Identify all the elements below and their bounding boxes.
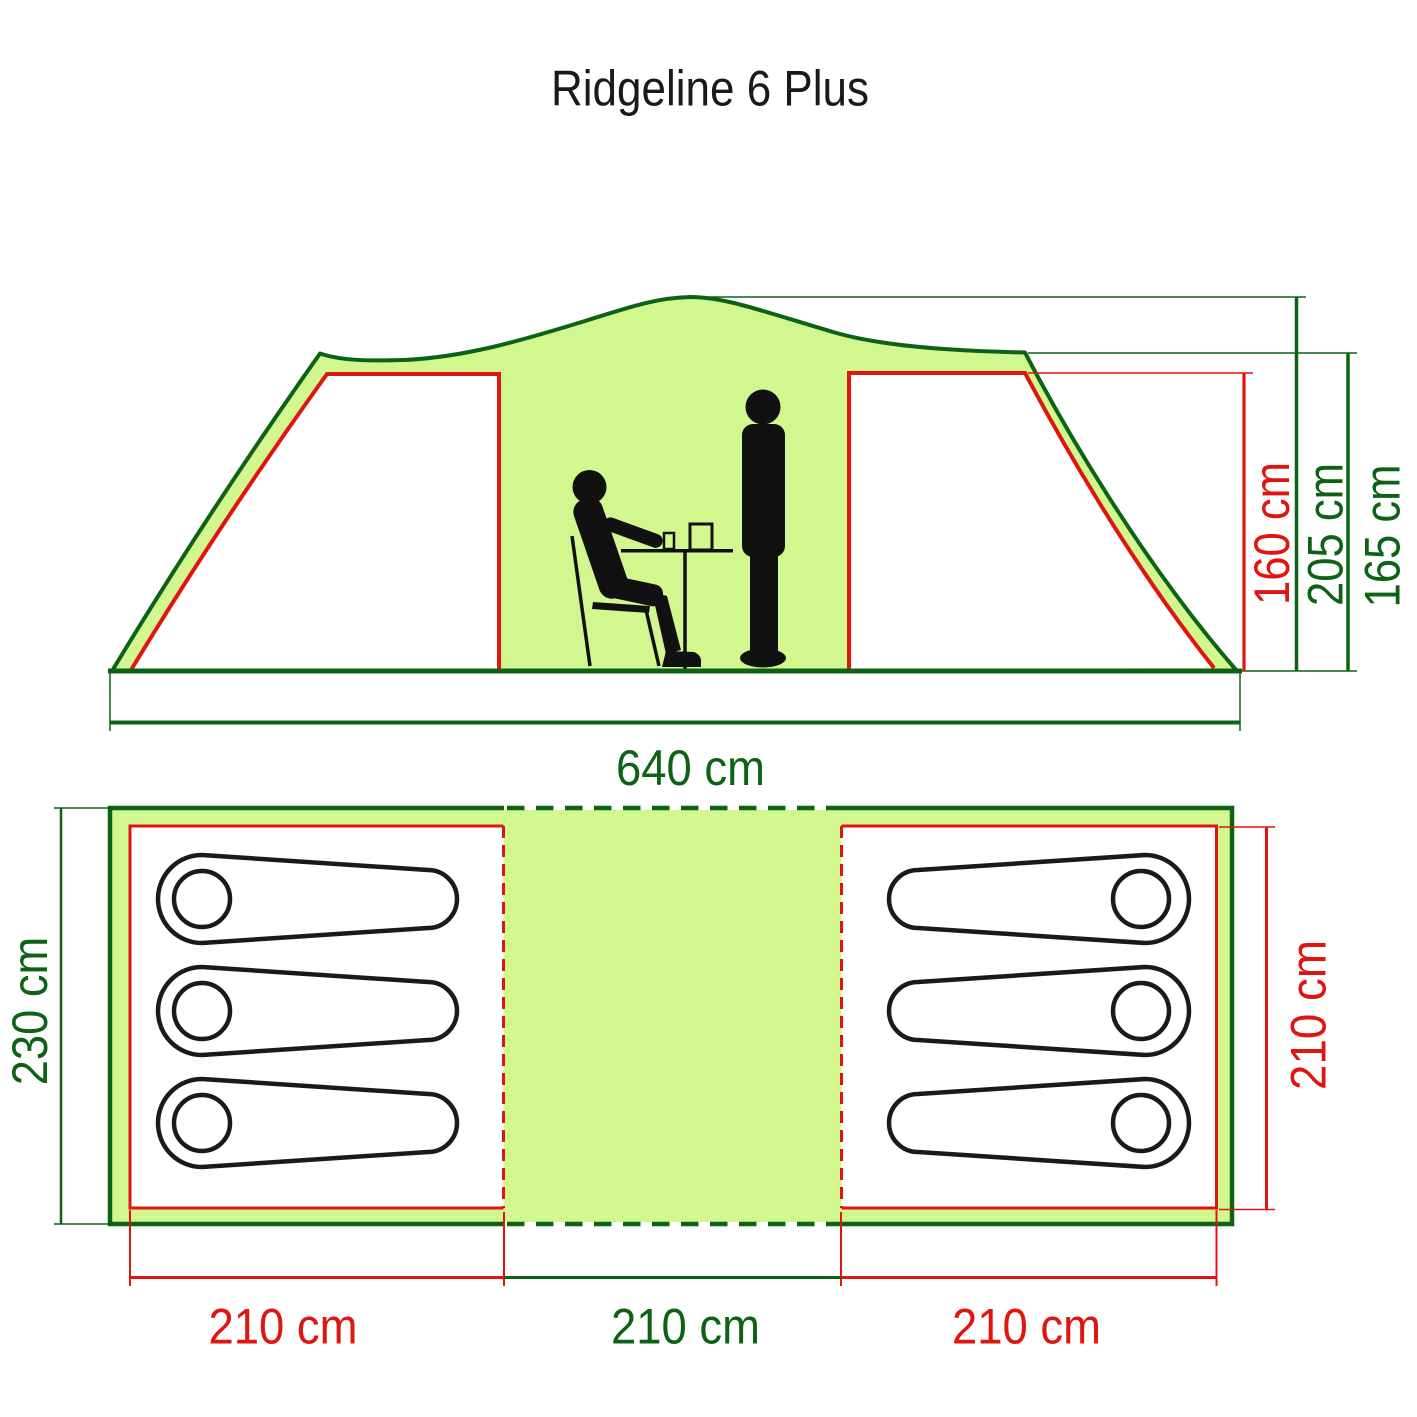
svg-text:230 cm: 230 cm [2, 937, 58, 1086]
svg-text:640 cm: 640 cm [616, 740, 765, 796]
svg-text:Ridgeline 6 Plus: Ridgeline 6 Plus [551, 61, 869, 117]
svg-text:210 cm: 210 cm [1281, 940, 1337, 1090]
svg-text:160 cm: 160 cm [1244, 462, 1300, 605]
svg-text:165 cm: 165 cm [1355, 465, 1411, 608]
svg-text:205 cm: 205 cm [1298, 463, 1354, 606]
svg-text:210 cm: 210 cm [209, 1299, 358, 1355]
svg-text:210 cm: 210 cm [952, 1299, 1101, 1355]
svg-text:210 cm: 210 cm [611, 1299, 760, 1355]
